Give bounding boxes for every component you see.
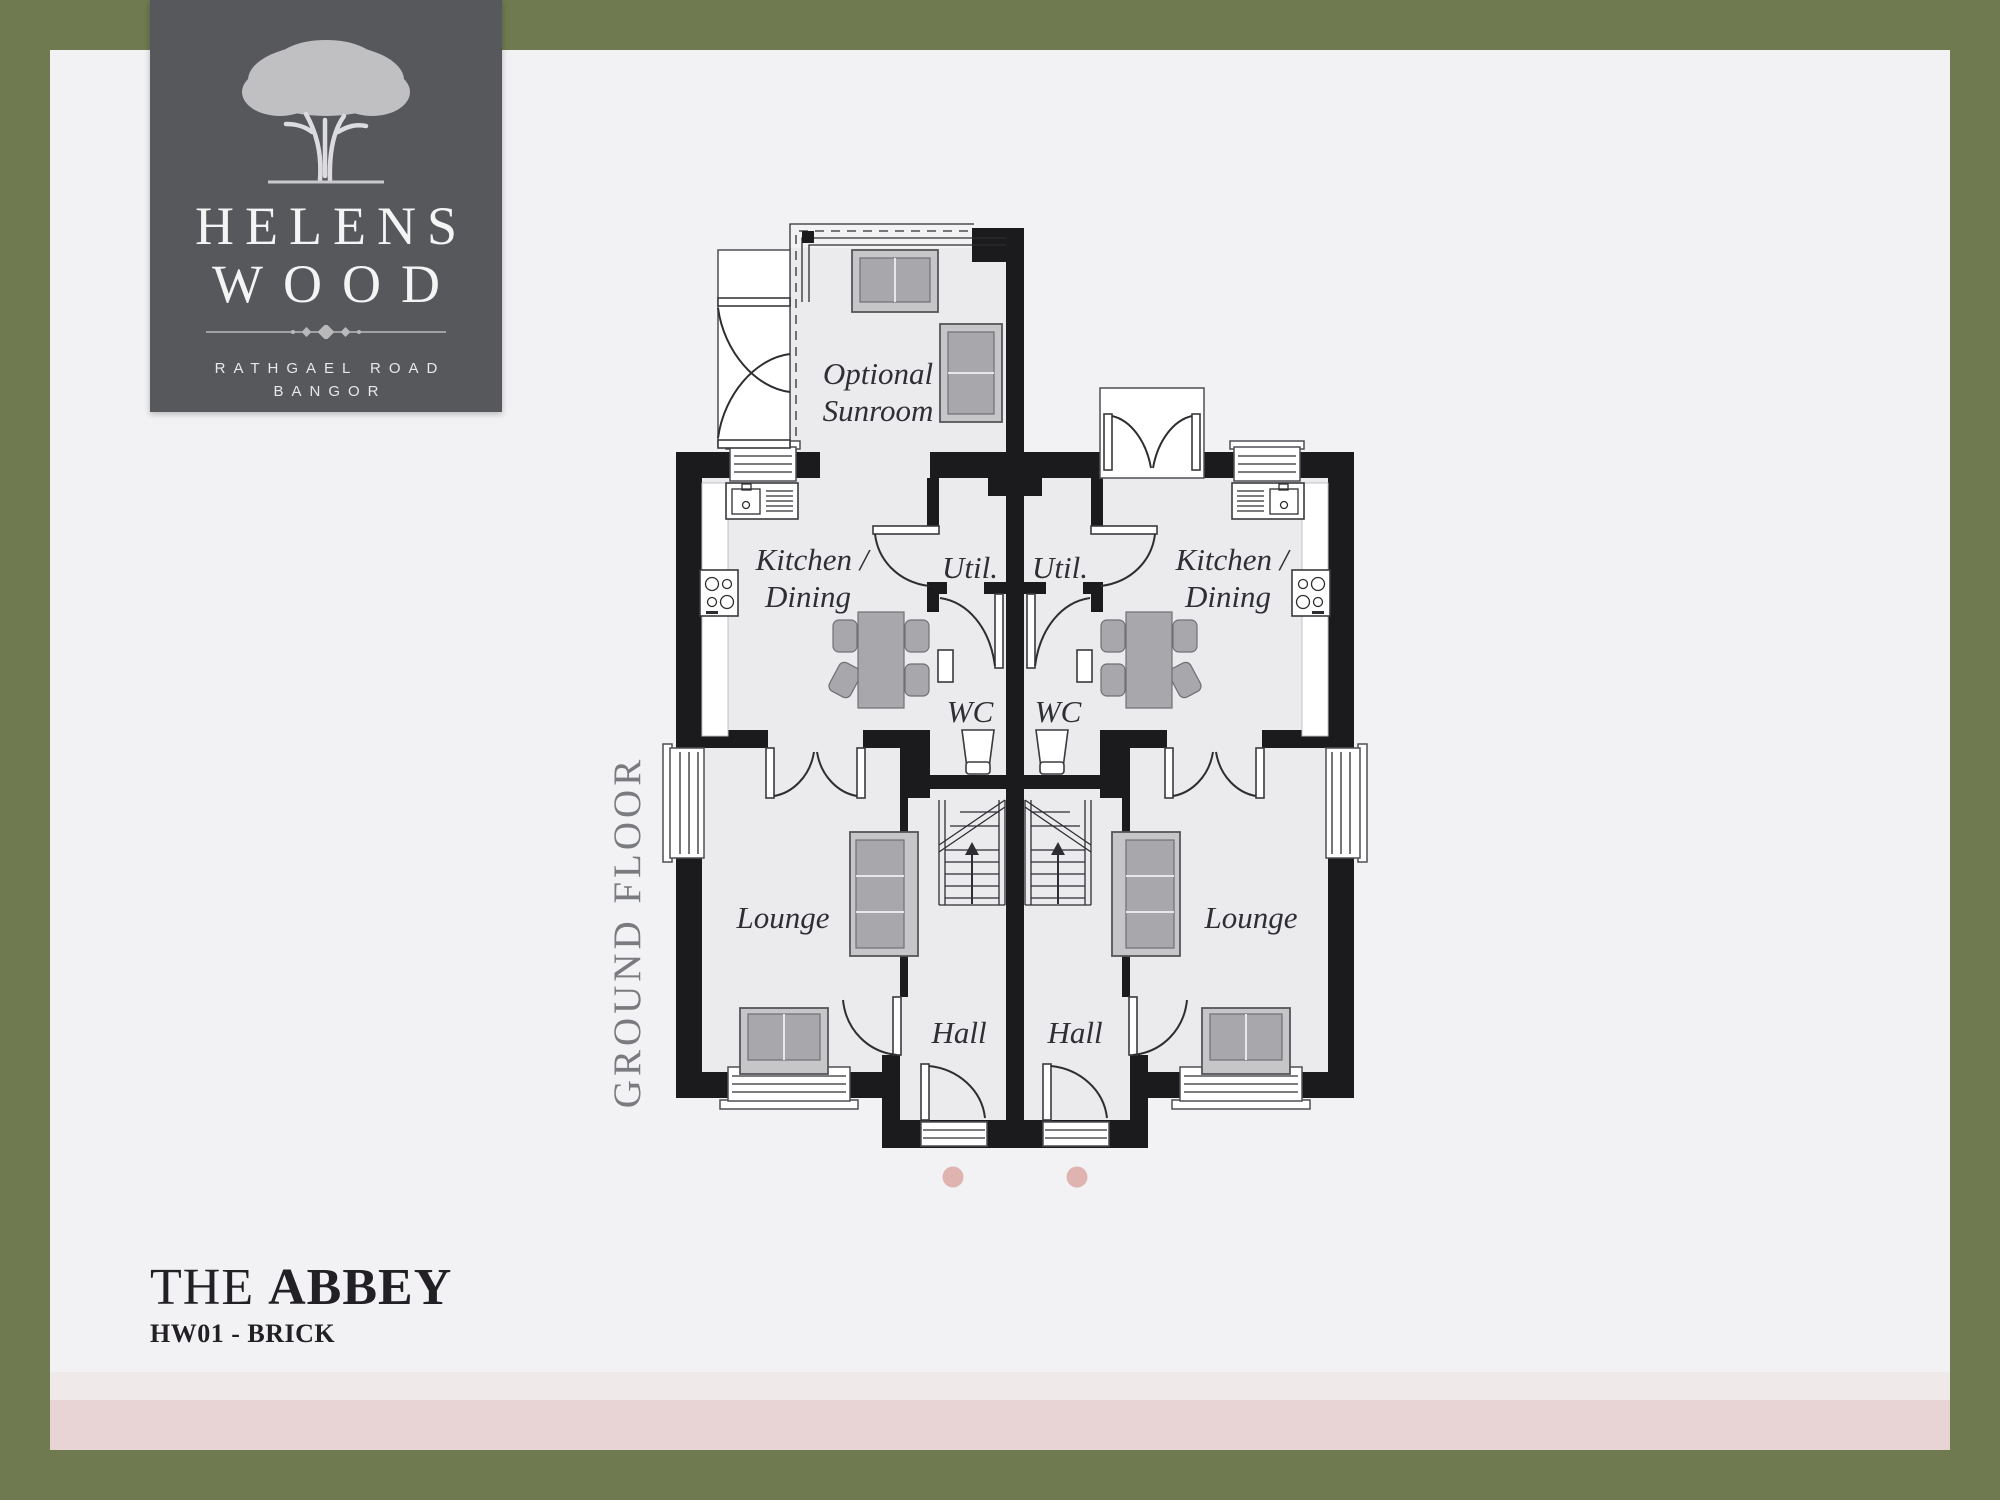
basin-right [1077,650,1092,682]
hob-left [700,570,738,616]
sink-right [1232,483,1304,519]
page: { "page": { "frame_color": "#6F7A50", "b… [0,0,2000,1500]
page-dot[interactable] [943,1167,964,1188]
page-dot[interactable] [1067,1167,1088,1188]
footer: THE ABBEY HW01 - BRICK [150,1258,452,1349]
sunroom-french-doors [718,250,790,448]
window-left-lounge [663,744,704,862]
hob-right [1292,570,1330,616]
porch-doors [1100,388,1204,478]
window-right-kitchen [1230,441,1304,481]
plan-subtitle: HW01 - BRICK [150,1319,452,1349]
pagination-dots [943,1167,1088,1188]
lounge-sofa-right-2seat [1202,1008,1290,1074]
floor-caption: GROUND FLOOR [606,756,649,1108]
label-hall-left: Hall [930,1015,986,1050]
label-util-right: Util. [1032,550,1088,585]
basin-left [938,650,953,682]
label-hall-right: Hall [1046,1015,1102,1050]
plan-title-bold: ABBEY [268,1259,452,1316]
toilet-right [1036,730,1068,774]
lounge-sofa-left-3seat [850,832,918,956]
label-wc-left: WC [947,694,994,729]
label-kitchen-left-line1: Kitchen / [755,542,871,577]
window-right-lounge [1326,744,1367,862]
sunroom-sofa-right [940,324,1002,422]
label-lounge-right: Lounge [1204,900,1298,935]
label-sunroom-line2: Sunroom [823,393,934,428]
sink-left [726,483,798,519]
label-lounge-left: Lounge [736,900,830,935]
label-kitchen-left-line2: Dining [764,579,851,614]
label-sunroom-line1: Optional [823,356,933,391]
plan-title-regular: THE [150,1259,254,1316]
label-kitchen-right-line2: Dining [1184,579,1271,614]
label-util-left: Util. [942,550,998,585]
label-kitchen-right-line1: Kitchen / [1175,542,1291,577]
label-wc-right: WC [1035,694,1082,729]
plan-title: THE ABBEY [150,1258,452,1317]
lounge-sofa-left-2seat [740,1008,828,1074]
sunroom-sofa-top [852,250,938,312]
lounge-sofa-right-3seat [1112,832,1180,956]
toilet-left [962,730,994,774]
